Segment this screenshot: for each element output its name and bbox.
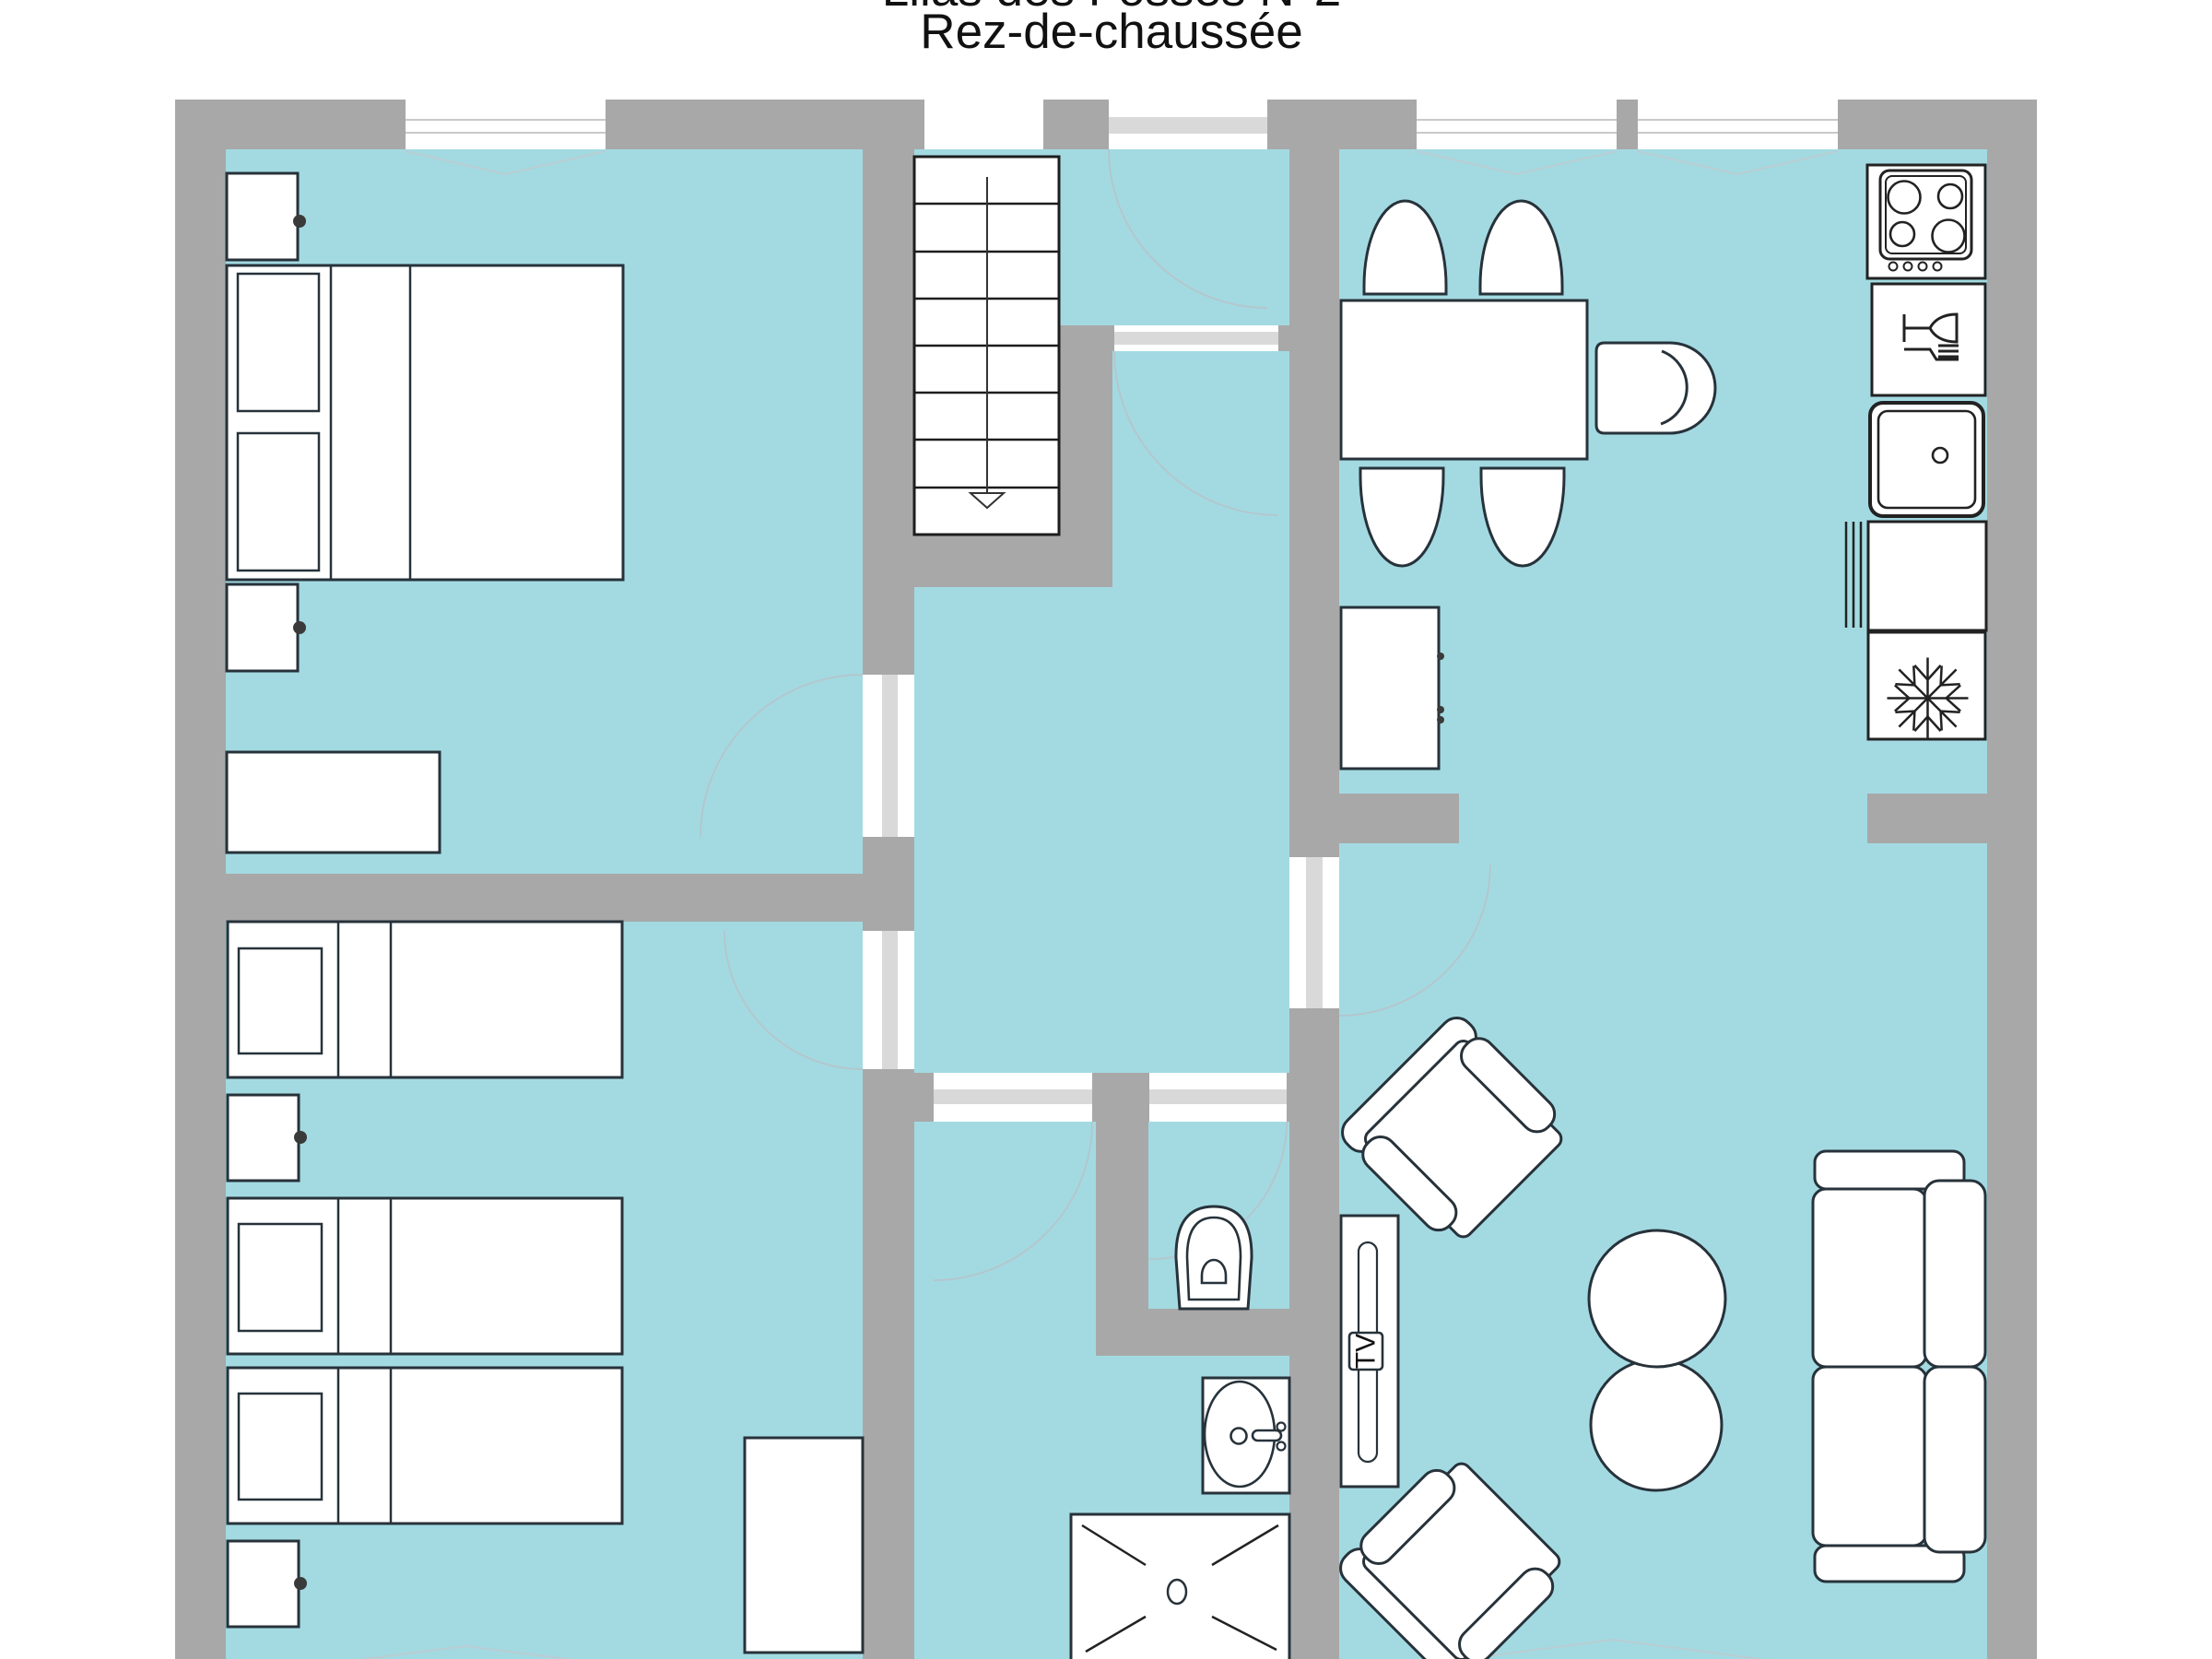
svg-text:TV: TV <box>1351 1334 1382 1369</box>
svg-text:Rez-de-chaussée: Rez-de-chaussée <box>920 5 1302 59</box>
